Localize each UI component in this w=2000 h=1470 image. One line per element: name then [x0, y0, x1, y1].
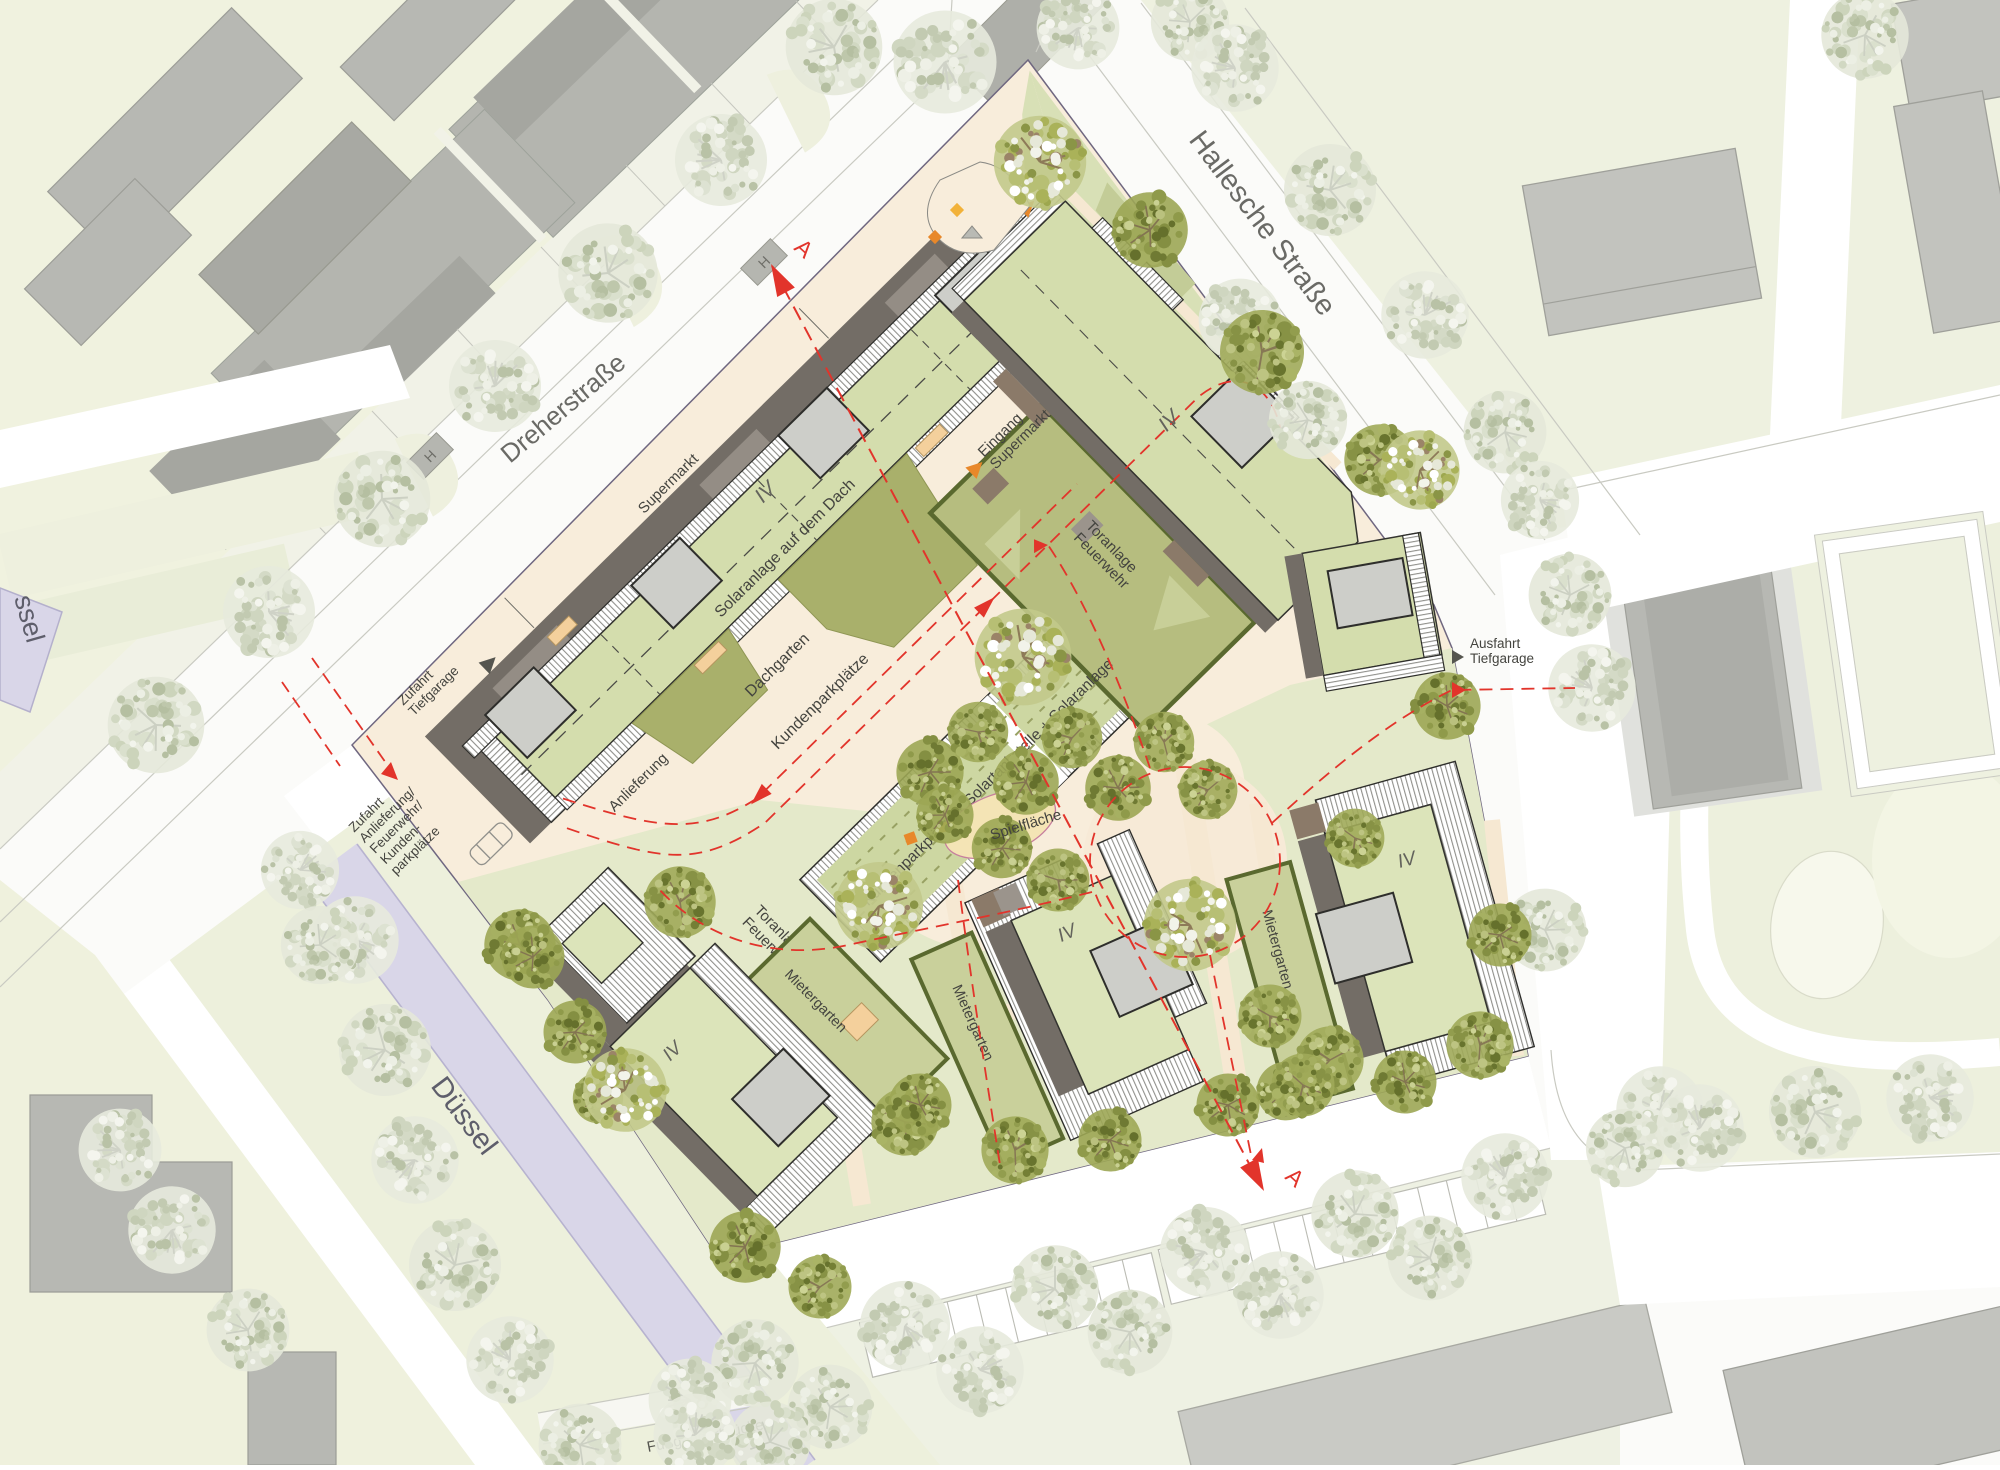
svg-text:Tiefgarage: Tiefgarage	[1470, 651, 1534, 666]
svg-text:Ausfahrt: Ausfahrt	[1470, 636, 1521, 651]
